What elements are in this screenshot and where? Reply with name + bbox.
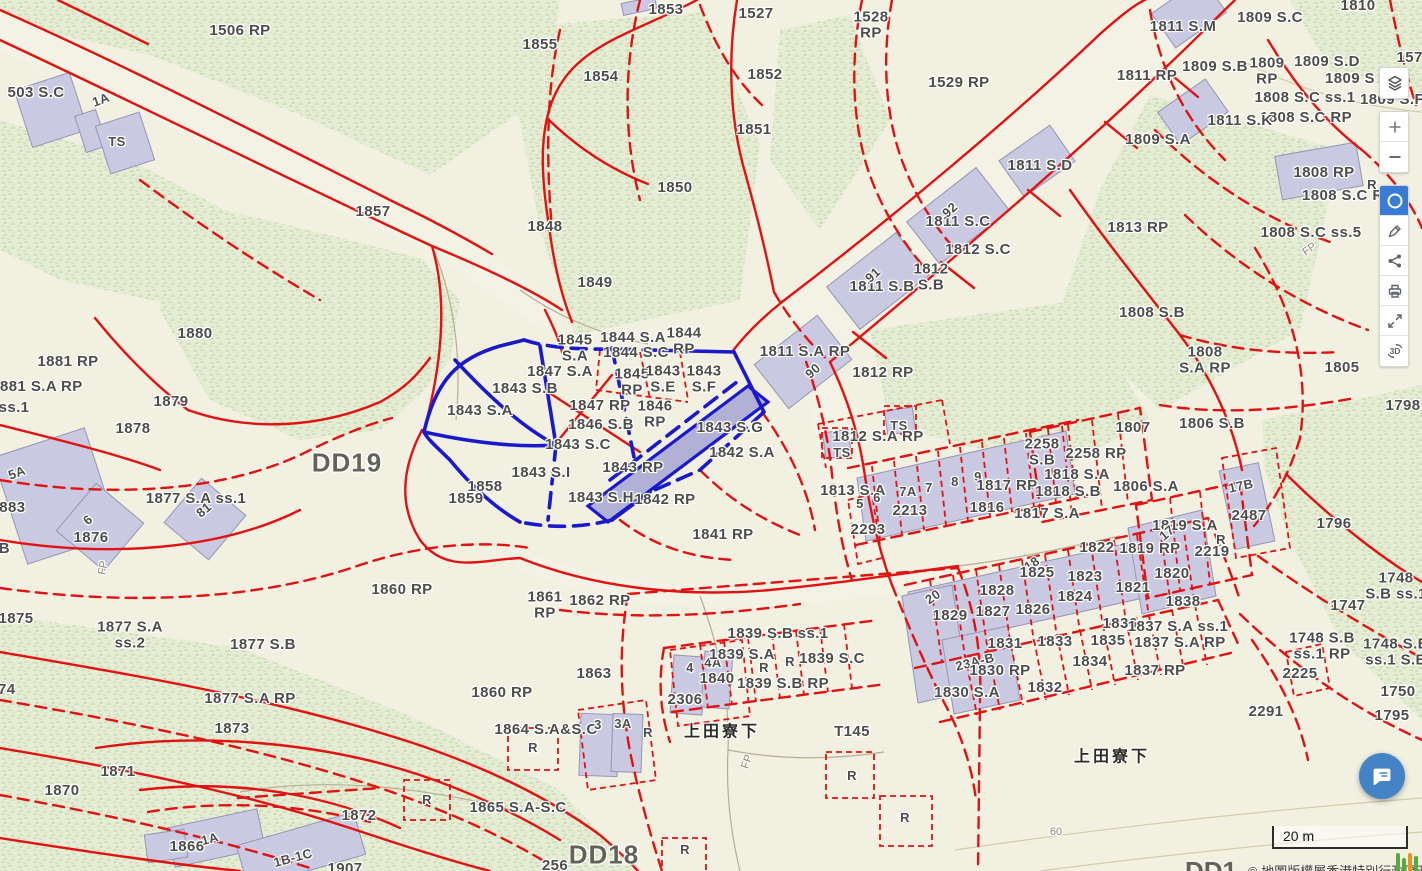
- map-label: 1870: [45, 783, 80, 799]
- map-label: 1574: [1397, 50, 1422, 66]
- map-label: 1527: [739, 6, 774, 22]
- map-label: 3A: [614, 717, 631, 731]
- measure-button[interactable]: [1380, 216, 1409, 246]
- map-label: 1808 S.C ss.1: [1254, 90, 1355, 106]
- map-label: 1829: [933, 608, 968, 624]
- map-label: 1819 RP: [1119, 541, 1180, 557]
- map-label: 1834: [1073, 654, 1108, 670]
- map-label: 2213: [893, 503, 928, 519]
- map-toolbar: 3D: [1379, 67, 1409, 379]
- map-label: 5: [856, 497, 864, 511]
- map-label: 1835: [1091, 633, 1126, 649]
- map-label: 2225: [1283, 666, 1318, 682]
- map-label: 1840: [700, 671, 735, 687]
- map-label: 1839 S.C: [799, 651, 865, 667]
- map-label: TS: [833, 446, 850, 460]
- layers-icon: [1386, 74, 1404, 92]
- map-label: 1830 RP: [969, 663, 1030, 679]
- map-label: DD19: [312, 449, 382, 476]
- map-label: 1852: [748, 67, 783, 83]
- svg-text:3D: 3D: [1390, 346, 1401, 356]
- map-label: 1816: [970, 500, 1005, 516]
- map-label: 1748 S.B ss.1 S.B: [1363, 636, 1422, 668]
- map-label: 1748 S.B ss.1: [1365, 570, 1422, 602]
- map-label: FP: [1301, 241, 1319, 259]
- map-label: 1A: [90, 91, 111, 110]
- map-label: 1880: [178, 326, 213, 342]
- map-label: 3: [594, 718, 602, 732]
- map-label: 1877 S.A ss.2: [97, 619, 163, 651]
- map-label: 1876: [74, 530, 109, 546]
- map-label: 1881 RP: [37, 354, 98, 370]
- map-label: 5A: [6, 464, 27, 483]
- map-label: 1796: [1317, 516, 1352, 532]
- map-label: 1811 S.D: [1008, 158, 1073, 174]
- map-label: 1843 S.B: [492, 381, 558, 397]
- map-label: 1811 S.C: [926, 214, 991, 230]
- scale-bar-label: 20 m: [1274, 826, 1314, 846]
- map-label: 1808 S.B: [1119, 305, 1185, 321]
- map-label: 1808 S.C RP: [1260, 110, 1352, 126]
- layers-button[interactable]: [1380, 68, 1409, 98]
- map-label: 1833: [1038, 634, 1073, 650]
- zoom-in-button[interactable]: [1380, 112, 1409, 142]
- map-label: 1846 S.B: [568, 417, 634, 433]
- map-label: 1849: [578, 275, 613, 291]
- map-label: R: [680, 843, 690, 857]
- map-label: 503 S.C: [8, 85, 65, 101]
- map-label: 1854: [584, 69, 619, 85]
- map-label: 2258 S.B: [1025, 436, 1060, 468]
- map-label: 1820: [1155, 566, 1190, 582]
- map-label: 1810: [1341, 0, 1376, 14]
- map-label: 1843 S.H: [568, 490, 634, 506]
- map-label: 7: [925, 481, 933, 495]
- map-label: 1811 RP: [1117, 68, 1177, 84]
- map-label: 1808 S.A RP: [1179, 344, 1231, 376]
- 3d-view-button[interactable]: 3D: [1380, 336, 1409, 366]
- 3d-icon: 3D: [1385, 341, 1405, 361]
- map-label: 1811 S.B: [850, 279, 915, 295]
- map-label: 1832: [1028, 680, 1063, 696]
- map-stage[interactable]: 1506 RP503 S.C1ATS1855185418531527185218…: [0, 0, 1422, 871]
- map-label: R: [785, 655, 795, 669]
- map-label: 2293: [851, 522, 886, 538]
- map-label: 1863: [577, 666, 612, 682]
- map-label: 1860 RP: [471, 685, 532, 701]
- map-label: FP: [740, 753, 756, 770]
- feedback-chat-button[interactable]: [1359, 753, 1405, 799]
- map-label: 1838: [1166, 594, 1201, 610]
- map-label: 1865 S.A-S.C: [469, 800, 566, 816]
- map-label: 1873: [215, 721, 250, 737]
- map-label: 1808 S.C ss.5: [1260, 225, 1361, 241]
- map-label: 1843 S.C: [545, 437, 611, 453]
- map-label: 1827: [976, 604, 1011, 620]
- map-label: 1750: [1381, 684, 1416, 700]
- map-label: 1866: [170, 839, 205, 855]
- map-label: 上田寮下: [684, 725, 760, 742]
- map-label: 1837 S.A ss.1: [1128, 619, 1229, 635]
- map-label: 1858: [468, 479, 503, 495]
- fullscreen-button[interactable]: [1380, 306, 1409, 336]
- map-label: 1877 S.A ss.1: [146, 491, 247, 507]
- map-label: 1748 S.B ss.1 RP: [1289, 630, 1355, 662]
- expand-icon: [1386, 312, 1404, 330]
- map-label: 1839 S.B RP: [737, 676, 829, 692]
- map-label: 1857: [356, 204, 391, 220]
- map-label: 1845 RP: [615, 366, 650, 398]
- map-label: 1841 RP: [692, 527, 753, 543]
- map-label: 1809 S.D: [1294, 54, 1360, 70]
- map-label: R: [1367, 178, 1377, 192]
- map-label: 1879: [154, 394, 189, 410]
- map-label: 1826: [1016, 602, 1051, 618]
- map-label: 1855: [523, 37, 558, 53]
- map-label: R: [528, 741, 538, 755]
- map-label: 1812 S.A RP: [832, 429, 923, 445]
- map-label: 1828: [980, 583, 1015, 599]
- map-label: 1813 RP: [1107, 220, 1168, 236]
- map-label: R: [422, 793, 432, 807]
- map-label: ss.1: [0, 400, 29, 416]
- map-label: 1862 RP: [569, 593, 630, 609]
- map-label: 1848: [528, 219, 563, 235]
- map-label: 4: [686, 661, 694, 675]
- map-label: R: [759, 661, 769, 675]
- map-label: 1883: [0, 500, 25, 516]
- map-label: 1843 S.G: [697, 420, 764, 436]
- scale-bar: 20 m: [1272, 826, 1408, 849]
- map-label: 2258 RP: [1065, 446, 1126, 462]
- map-label: TS: [108, 135, 125, 149]
- map-label: R: [847, 769, 857, 783]
- map-label: 1907: [328, 861, 363, 871]
- map-label: 1809 S.B: [1182, 59, 1248, 75]
- map-label: 7A: [899, 485, 916, 499]
- map-label: 1843 S.E: [646, 363, 681, 395]
- map-label: 60: [1050, 827, 1062, 839]
- chat-bubble-icon: [1371, 765, 1393, 787]
- map-label: 1806 S.B: [1179, 416, 1245, 432]
- map-label: 90: [803, 361, 823, 381]
- map-label: 1809 RP: [1250, 55, 1285, 87]
- map-label: 1822: [1080, 540, 1115, 556]
- map-label: R: [643, 726, 653, 740]
- map-label: 1853: [649, 2, 684, 18]
- map-label: 1845 S.A: [558, 332, 593, 364]
- map-label: 1878: [116, 421, 151, 437]
- map-label: 2291: [1249, 704, 1284, 720]
- map-label: 1861 RP: [528, 589, 563, 621]
- map-label: 1874: [0, 682, 15, 698]
- map-label: R: [1216, 533, 1226, 547]
- map-label: 1850: [658, 180, 693, 196]
- map-label: 1830 S.A: [934, 685, 1000, 701]
- map-label: 1817 S.A: [1014, 506, 1080, 522]
- zoom-out-button[interactable]: [1380, 142, 1409, 172]
- circle-select-button[interactable]: [1380, 186, 1409, 216]
- plus-icon: [1386, 118, 1404, 136]
- map-label: 1811 S.A RP: [760, 344, 851, 360]
- map-label: 1860 RP: [371, 582, 432, 598]
- map-label: 1817 RP: [976, 478, 1037, 494]
- map-label: 6: [81, 512, 96, 527]
- map-label: 1844 RP: [667, 325, 702, 357]
- map-label: 1864 S.A&S.C: [494, 722, 597, 738]
- map-label: 1A: [200, 830, 220, 848]
- map-label: 1B-1C: [272, 846, 314, 869]
- map-label: 1837 RP: [1124, 663, 1185, 679]
- map-label: 6: [873, 491, 881, 505]
- map-label: 1824: [1058, 589, 1093, 605]
- map-label: 1528 RP: [854, 9, 889, 41]
- print-button[interactable]: [1380, 276, 1409, 306]
- map-label: 1795: [1375, 708, 1410, 724]
- map-label: 1872: [342, 808, 377, 824]
- circle-icon: [1385, 191, 1405, 211]
- minus-icon: [1386, 148, 1404, 166]
- map-labels-layer: 1506 RP503 S.C1ATS1855185418531527185218…: [0, 0, 1422, 871]
- map-label: 1821: [1116, 580, 1151, 596]
- map-label: 1812 RP: [852, 365, 913, 381]
- map-label: 1877 S.B: [230, 637, 296, 653]
- map-label: 1881 S.A RP: [0, 379, 83, 395]
- map-label: 1839 S.B ss.1: [727, 626, 828, 642]
- map-label: 1837 S.A RP: [1134, 635, 1225, 651]
- map-label: 1847 RP: [569, 398, 630, 414]
- map-label: 1851: [737, 122, 772, 138]
- map-label: 1809 S: [1325, 71, 1375, 87]
- map-label: 1847 S.A: [527, 364, 593, 380]
- map-label: 上田寮下: [1074, 750, 1150, 767]
- map-label: 2306: [668, 692, 703, 708]
- share-icon: [1386, 252, 1404, 270]
- map-label: 1871: [101, 764, 136, 780]
- map-label: 1812 S.B: [914, 261, 949, 293]
- map-label: 1809 S.A: [1125, 132, 1191, 148]
- map-label: 1805: [1325, 360, 1360, 376]
- map-label: 1843 S.F: [687, 363, 722, 395]
- map-label: 1818 S.A: [1044, 467, 1110, 483]
- map-label: 1842 S.A: [709, 445, 775, 461]
- map-label: 1843 S.I: [511, 465, 570, 481]
- map-label: 1811 S.K: [1208, 113, 1273, 129]
- map-label: 1843 RP: [602, 460, 663, 476]
- map-label: 1877 S.A RP: [204, 691, 295, 707]
- share-button[interactable]: [1380, 246, 1409, 276]
- map-label: 1875: [0, 611, 33, 627]
- map-label: 1818 S.B: [1035, 484, 1101, 500]
- map-label: 2487: [1232, 508, 1267, 524]
- map-label: 1506 RP: [209, 23, 270, 39]
- map-label: 1846 RP: [638, 398, 673, 430]
- map-label: 1747: [1331, 598, 1366, 614]
- map-label: 1806 S.A: [1113, 479, 1179, 495]
- map-label: 1812 S.C: [945, 242, 1011, 258]
- map-label: 256: [542, 858, 568, 871]
- map-label: 17B: [1227, 477, 1254, 496]
- map-label: 6B: [0, 541, 10, 557]
- map-label: 1811 S.M: [1150, 19, 1217, 35]
- map-label: 1807: [1116, 420, 1151, 436]
- pencil-icon: [1386, 222, 1404, 240]
- map-label: 1809 S.C: [1237, 10, 1303, 26]
- map-label: 8: [951, 475, 959, 489]
- map-label: 1823: [1068, 569, 1103, 585]
- map-label: 20: [923, 587, 943, 607]
- map-label: 1842 RP: [634, 492, 695, 508]
- printer-icon: [1386, 282, 1404, 300]
- map-label: 1808 RP: [1293, 165, 1354, 181]
- map-label: R: [900, 811, 910, 825]
- map-label: 1798: [1386, 398, 1421, 414]
- map-label: 1844 S.C: [603, 345, 669, 361]
- map-label: 1825: [1020, 565, 1055, 581]
- map-label: T145: [834, 724, 870, 740]
- map-label: 1529 RP: [928, 75, 989, 91]
- map-label: 1843 S.A: [447, 403, 513, 419]
- map-label: DD18: [569, 841, 639, 868]
- map-label: FP: [97, 560, 111, 576]
